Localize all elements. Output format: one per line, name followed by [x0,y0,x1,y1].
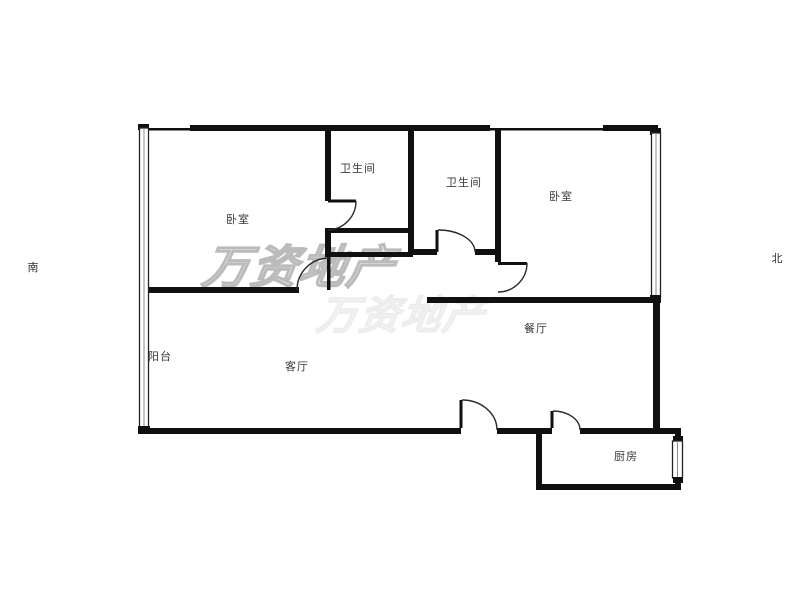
living-room-south-door [460,400,498,430]
room-label-bathroom-1: 卫生间 [340,160,376,176]
compass-south-label: 南 [28,259,39,275]
kitchen-door [551,411,581,430]
room-label-bedroom-1: 卧室 [226,211,250,227]
compass-north-label: 北 [772,250,783,266]
floor-plan-page: 万资地产 万资地产 [0,0,800,600]
room-label-balcony: 阳台 [148,348,172,364]
balcony-window-west [138,124,150,434]
bathroom-2-door [436,230,476,252]
bedroom-2-window-east [650,128,661,303]
room-label-bathroom-2: 卫生间 [446,174,482,190]
floor-plan-drawing [0,0,800,600]
room-label-dining-room: 餐厅 [524,320,548,336]
bathroom-1-door [328,200,356,231]
inner-walls [140,128,681,490]
room-label-bedroom-2: 卧室 [549,188,573,204]
doors [297,200,580,431]
bedroom-2-door [498,262,527,292]
bedroom-1-door [297,257,331,290]
outer-walls [140,125,661,434]
kitchen-window-east [673,436,684,483]
room-label-kitchen: 厨房 [614,448,638,464]
room-label-living-room: 客厅 [285,358,309,374]
